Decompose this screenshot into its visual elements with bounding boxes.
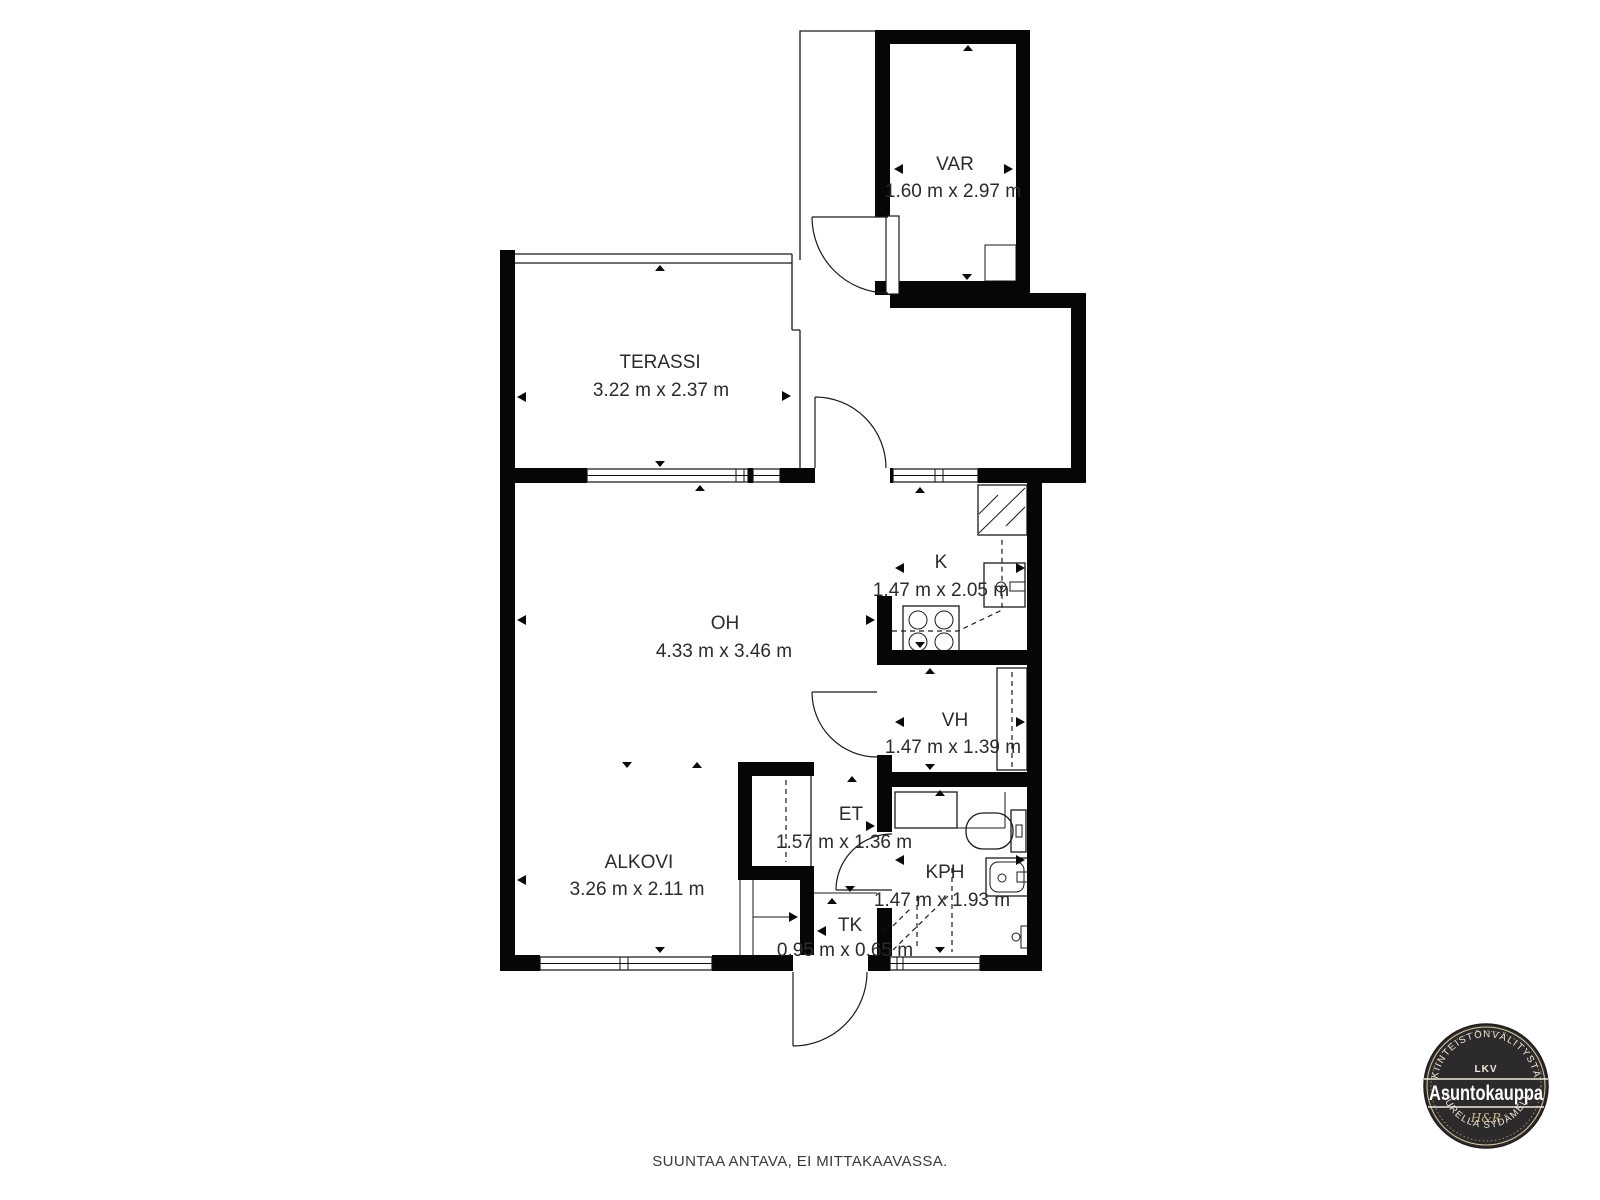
kitchen-window xyxy=(893,469,978,482)
balcony-door xyxy=(815,397,886,468)
vh-door xyxy=(812,692,877,757)
room-alkovi-label: ALKOVI xyxy=(605,852,674,873)
room-kph-dims: 1.47 m x 1.93 m xyxy=(874,890,1010,911)
room-k-dims: 1.47 m x 2.05 m xyxy=(873,580,1009,601)
floorplan-drawing: VAR 1.60 m x 2.97 m TERASSI 3.22 m x 2.3… xyxy=(0,0,1600,1200)
logo-lkv-text: LKV xyxy=(1475,1064,1498,1075)
room-labels: VAR 1.60 m x 2.97 m TERASSI 3.22 m x 2.3… xyxy=(570,154,1022,961)
room-alkovi-dims: 3.26 m x 2.11 m xyxy=(570,879,705,900)
room-oh-dims: 4.33 m x 3.46 m xyxy=(656,641,792,662)
room-terassi-dims: 3.22 m x 2.37 m xyxy=(593,380,729,401)
room-tk-dims: 0.95 m x 0.65 m xyxy=(777,940,913,961)
var-shelf xyxy=(985,245,1016,281)
room-et-dims: 1.57 m x 1.36 m xyxy=(776,832,912,853)
room-kph-label: KPH xyxy=(925,862,964,883)
footer-disclaimer: SUUNTAA ANTAVA, EI MITTAKAAVASSA. xyxy=(652,1153,947,1170)
var-door xyxy=(812,216,899,294)
room-tk-label: TK xyxy=(838,915,863,936)
room-oh-label: OH xyxy=(711,613,740,634)
corridor-outline xyxy=(800,31,876,260)
room-var-dims: 1.60 m x 2.97 m xyxy=(885,181,1021,202)
room-k-label: K xyxy=(935,552,948,573)
kitchen-fixtures xyxy=(892,485,1027,656)
agency-logo: KIINTEISTÖNVÄLITYSTÄ LKV Asuntokauppa H&… xyxy=(0,0,1548,1148)
room-var-label: VAR xyxy=(936,154,974,175)
room-et-label: ET xyxy=(839,804,864,825)
floorplan-page: VAR 1.60 m x 2.97 m TERASSI 3.22 m x 2.3… xyxy=(0,0,1600,1200)
walls xyxy=(500,30,1086,971)
room-vh-label: VH xyxy=(942,710,968,731)
room-vh-dims: 1.47 m x 1.39 m xyxy=(885,737,1021,758)
alkovi-window xyxy=(540,957,712,970)
room-terassi-label: TERASSI xyxy=(619,352,700,373)
entrance-door xyxy=(793,972,867,1046)
